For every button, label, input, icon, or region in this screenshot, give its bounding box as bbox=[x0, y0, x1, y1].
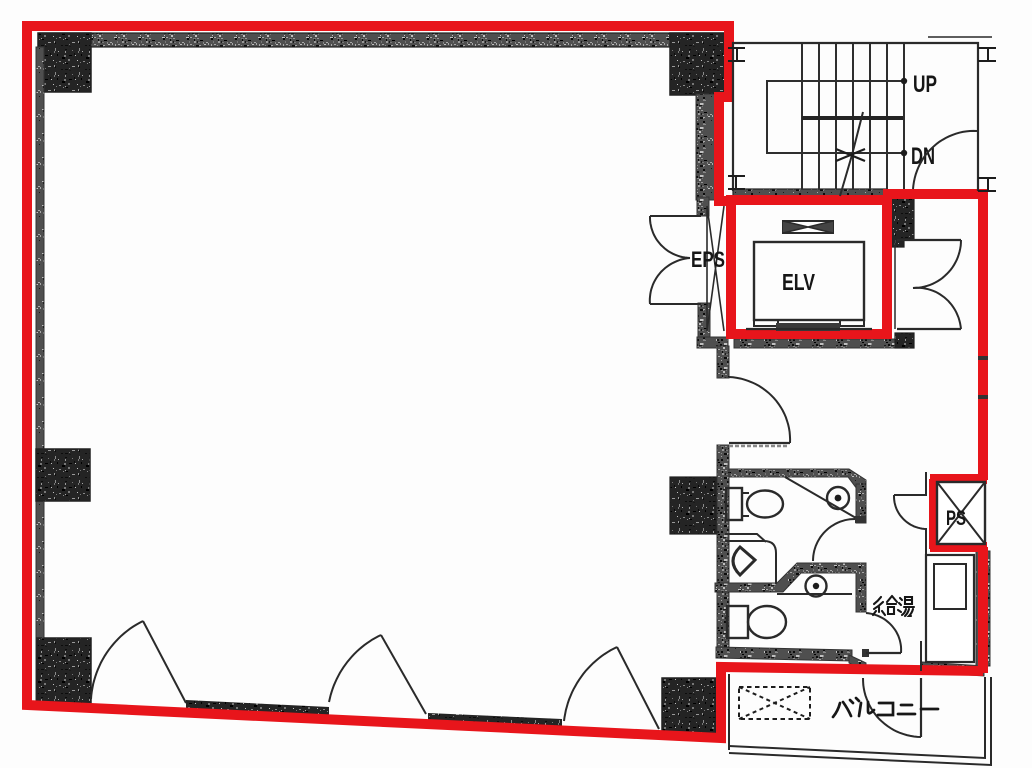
svg-text:UP: UP bbox=[913, 71, 937, 98]
svg-text:ELV: ELV bbox=[782, 269, 815, 295]
svg-text:PS: PS bbox=[946, 507, 966, 530]
svg-text:DN: DN bbox=[911, 143, 935, 170]
svg-text:EPS: EPS bbox=[691, 247, 725, 272]
